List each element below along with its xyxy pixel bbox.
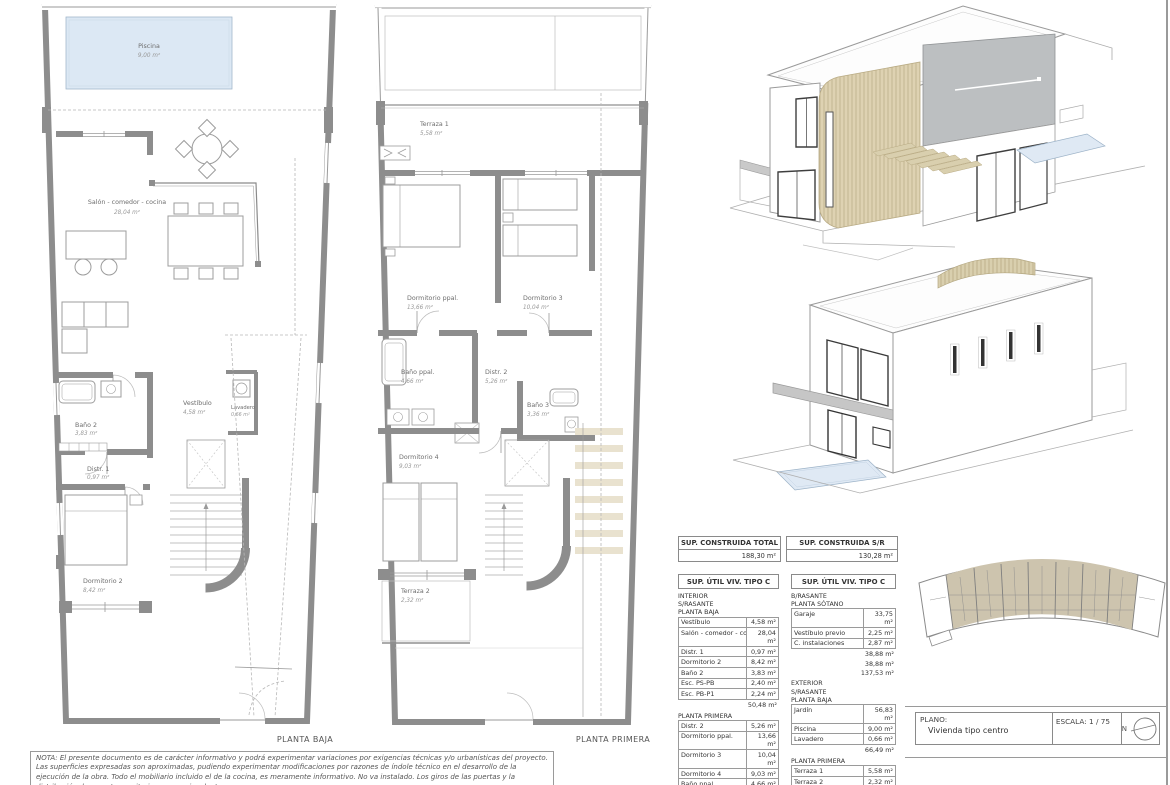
table-row: Dormitorio 49,03 m² [678,768,779,780]
left-face [773,305,893,473]
axonometric-view-rear [728,240,1158,530]
svg-text:Lavadero: Lavadero [231,405,255,411]
table-value: 130,28 m² [787,550,897,561]
svg-text:Baño ppal.: Baño ppal. [401,369,435,376]
svg-text:10,04 m²: 10,04 m² [523,304,550,311]
section-heading: PLANTA PRIMERA [791,757,896,765]
svg-text:5,26 m²: 5,26 m² [485,378,508,385]
table-row: Distr. 10,97 m² [678,646,779,658]
table-row: Vestíbulo4,58 m² [678,617,779,629]
dining-table [168,203,243,279]
table-row: Terraza 22,32 m² [791,776,896,785]
subtotal-value: 50,48 m² [678,700,779,709]
svg-text:Vestíbulo: Vestíbulo [183,399,212,407]
title-block: PLANO: Vivienda tipo centro ESCALA: 1 / … [915,712,1160,745]
table-row: Baño 23,83 m² [678,667,779,679]
row-value: 28,04 m² [747,628,778,646]
plano-value: Vivienda tipo centro [920,724,1048,735]
row-value: 3,83 m² [747,668,778,678]
row-label: Piscina [792,724,864,734]
outer-walls [42,7,336,721]
table-value: 188,30 m² [679,550,780,561]
table-row: Dormitorio ppal.13,66 m² [678,731,779,751]
stray-roof-lines [803,245,913,260]
table-header: SUP. CONSTRUIDA S/R [787,537,897,550]
row-label: Salón - comedor - cocina [679,628,747,646]
plan-sheet: Piscina 9,00 m² Salón - comedor - cocina [0,0,1170,785]
table-row: Esc. PB-P12,24 m² [678,688,779,700]
row-value: 9,03 m² [747,769,778,779]
row-value: 0,66 m² [864,734,895,744]
plano-cell: PLANO: Vivienda tipo centro [916,713,1053,744]
room-area: 9,00 m² [138,52,161,59]
svg-text:Terraza 1: Terraza 1 [419,121,449,128]
row-value: 2,87 m² [864,639,895,649]
table-row: Jardín56,83 m² [791,704,896,724]
section-heading: S/RASANTE [791,688,896,696]
row-label: Vestíbulo [679,618,747,628]
svg-text:Dormitorio 2: Dormitorio 2 [83,578,123,585]
table-row: Baño ppal.4,66 m² [678,778,779,785]
escala-label: ESCALA: [1056,717,1087,726]
row-value: 4,66 m² [747,779,778,785]
section-heading: PLANTA BAJA [791,696,896,704]
side-steps [1060,105,1083,123]
plano-label: PLANO: [920,715,1048,724]
site-plan [915,525,1170,665]
row-label: Esc. PB-P1 [679,689,747,699]
row-label: Baño 2 [679,668,747,678]
north-arrow-icon [1129,715,1159,743]
sheet-right-border [1166,0,1168,785]
table-row: Salón - comedor - cocina28,04 m² [678,627,779,647]
svg-text:3,36 m²: 3,36 m² [527,411,550,418]
section-heading: PLANTA BAJA [678,608,779,616]
table-row: C. instalaciones2,87 m² [791,638,896,650]
sup-util-right-table: SUP. ÚTIL VIV. TIPO C B/RASANTEPLANTA SÓ… [791,574,896,785]
table-title: SUP. ÚTIL VIV. TIPO C [678,574,779,589]
row-value: 2,25 m² [864,628,895,638]
pool: Piscina 9,00 m² [66,17,232,89]
svg-text:4,58 m²: 4,58 m² [183,409,206,416]
row-value: 5,58 m² [864,766,895,776]
row-label: Jardín [792,705,864,723]
section-heading: EXTERIOR [791,680,896,688]
row-value: 56,83 m² [864,705,895,723]
subtotal-value: 38,88 m² [791,658,896,667]
row-value: 0,97 m² [747,647,778,657]
svg-text:Baño 3: Baño 3 [527,402,549,409]
svg-text:2,32 m²: 2,32 m² [401,597,424,604]
axonometric-view-front [715,0,1170,250]
row-label: Vestíbulo previo [792,628,864,638]
outer-walls [375,8,651,722]
row-label: Dormitorio 3 [679,750,747,768]
planta-primera-drawing: Terraza 1 5,58 m² Dormitorio ppal. 13,66… [365,3,660,745]
svg-text:Salón - comedor - cocina: Salón - comedor - cocina [88,198,166,206]
section-heading: INTERIOR [678,592,779,600]
row-label: Lavadero [792,734,864,744]
subtotal-value: 66,49 m² [791,745,896,754]
sup-construida-total-box: SUP. CONSTRUIDA TOTAL 188,30 m² [678,536,781,562]
svg-text:Distr. 1: Distr. 1 [87,466,109,473]
subtotal-value: 137,53 m² [791,668,896,677]
row-value: 8,42 m² [747,657,778,667]
row-value: 33,75 m² [864,609,895,627]
svg-text:Terraza 2: Terraza 2 [400,588,430,595]
svg-text:Dormitorio 3: Dormitorio 3 [523,295,563,302]
row-label: Dormitorio 4 [679,769,747,779]
table-row: Lavadero0,66 m² [791,733,896,745]
svg-text:0,97 m²: 0,97 m² [87,474,110,481]
table-row: Garaje33,75 m² [791,608,896,628]
north-cell: N [1122,713,1159,744]
svg-text:4,66 m²: 4,66 m² [401,378,424,385]
row-label: Baño ppal. [679,779,747,785]
area-tables: SUP. CONSTRUIDA TOTAL 188,30 m² SUP. CON… [672,530,912,785]
sup-util-left-table: SUP. ÚTIL VIV. TIPO C INTERIORS/RASANTEP… [678,574,779,785]
table-row: Distr. 25,26 m² [678,720,779,732]
svg-text:Dormitorio ppal.: Dormitorio ppal. [407,295,458,302]
row-value: 10,04 m² [747,750,778,768]
row-value: 4,58 m² [747,618,778,628]
table-row: Dormitorio 28,42 m² [678,656,779,668]
row-value: 9,00 m² [864,724,895,734]
svg-text:8,42 m²: 8,42 m² [83,587,106,594]
section-heading: PLANTA PRIMERA [678,712,779,720]
section-heading: S/RASANTE [678,600,779,608]
table-row: Terraza 15,58 m² [791,765,896,777]
svg-text:Dormitorio 4: Dormitorio 4 [399,454,439,461]
svg-text:Distr. 2: Distr. 2 [485,369,507,376]
row-label: Distr. 1 [679,647,747,657]
room-label: Piscina [138,43,160,50]
sup-construida-sr-box: SUP. CONSTRUIDA S/R 130,28 m² [786,536,898,562]
table-row: Piscina9,00 m² [791,723,896,735]
table-row: Esc. PS-PB2,40 m² [678,678,779,690]
svg-text:9,03 m²: 9,03 m² [399,463,422,470]
table-row: Vestíbulo previo2,25 m² [791,627,896,639]
row-label: Terraza 1 [792,766,864,776]
escala-cell: ESCALA: 1 / 75 [1053,713,1122,744]
svg-text:5,58 m²: 5,58 m² [420,130,443,137]
table-row: Dormitorio 310,04 m² [678,749,779,769]
escala-value: 1 / 75 [1089,717,1110,726]
row-label: C. instalaciones [792,639,864,649]
sheet-bottom-line [905,757,1168,758]
row-value: 5,26 m² [747,721,778,731]
table-header: SUP. CONSTRUIDA TOTAL [679,537,780,550]
disclaimer-note: NOTA: El presente documento es de caráct… [30,751,554,785]
section-heading: B/RASANTE [791,592,896,600]
row-value: 13,66 m² [747,732,778,750]
planta-baja-drawing: Piscina 9,00 m² Salón - comedor - cocina [35,3,345,745]
row-label: Esc. PS-PB [679,679,747,689]
row-label: Dormitorio 2 [679,657,747,667]
row-value: 2,24 m² [747,689,778,699]
svg-text:28,04 m²: 28,04 m² [114,209,141,216]
planta-baja-title: PLANTA BAJA [245,735,365,744]
row-value: 2,32 m² [864,777,895,785]
row-label: Dormitorio ppal. [679,732,747,750]
subtotal-value: 38,88 m² [791,649,896,658]
section-heading: PLANTA SÓTANO [791,600,896,608]
north-label: N [1122,725,1127,733]
table-title: SUP. ÚTIL VIV. TIPO C [791,574,896,589]
row-label: Distr. 2 [679,721,747,731]
svg-text:13,66 m²: 13,66 m² [407,304,434,311]
row-label: Terraza 2 [792,777,864,785]
svg-text:0,66 m²: 0,66 m² [231,412,250,418]
sheet-divider-line [905,706,1168,707]
svg-text:3,83 m²: 3,83 m² [75,430,98,437]
planta-primera-title: PLANTA PRIMERA [548,735,678,744]
svg-text:Baño 2: Baño 2 [75,422,97,429]
row-value: 2,40 m² [747,679,778,689]
row-label: Garaje [792,609,864,627]
